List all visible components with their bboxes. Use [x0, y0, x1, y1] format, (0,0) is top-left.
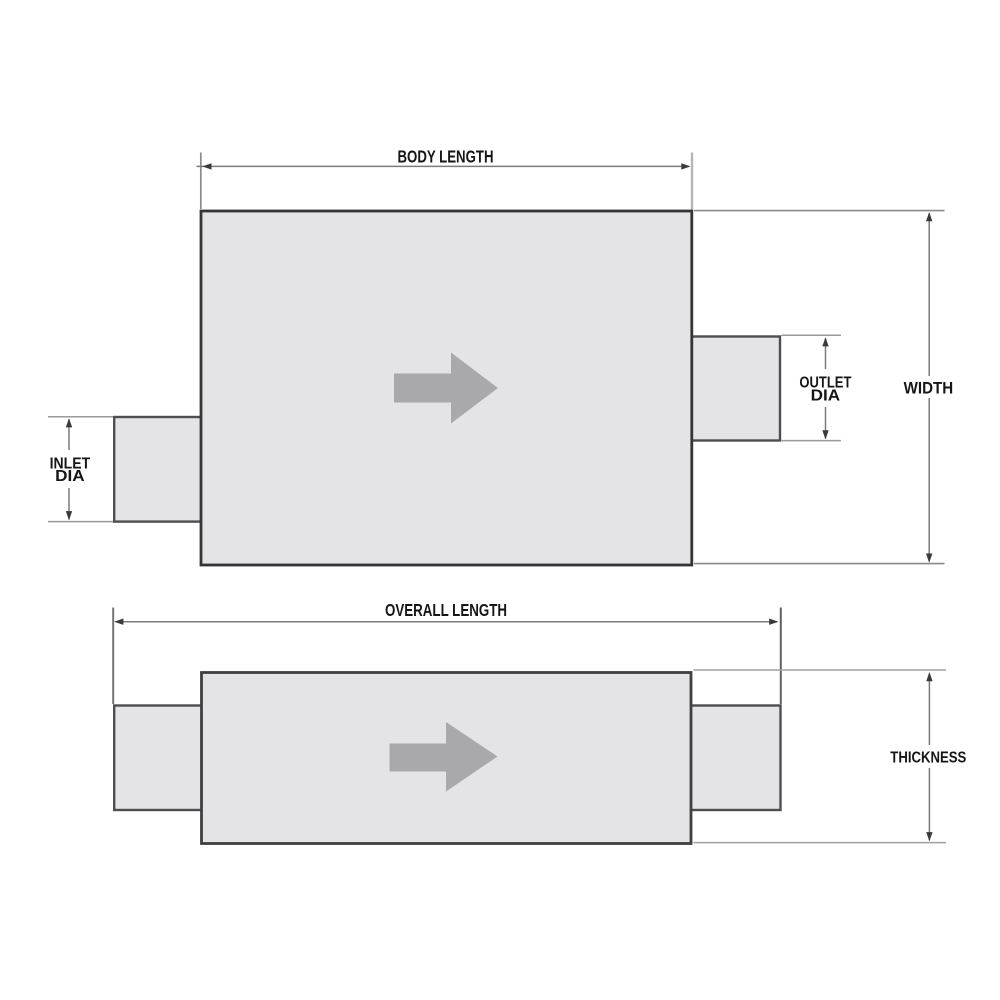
svg-text:DIA: DIA [811, 387, 841, 404]
svg-text:WIDTH: WIDTH [904, 378, 954, 397]
svg-text:BODY LENGTH: BODY LENGTH [398, 147, 494, 167]
svg-text:OVERALL LENGTH: OVERALL LENGTH [385, 600, 507, 620]
svg-text:DIA: DIA [55, 468, 85, 485]
svg-text:THICKNESS: THICKNESS [890, 749, 966, 766]
